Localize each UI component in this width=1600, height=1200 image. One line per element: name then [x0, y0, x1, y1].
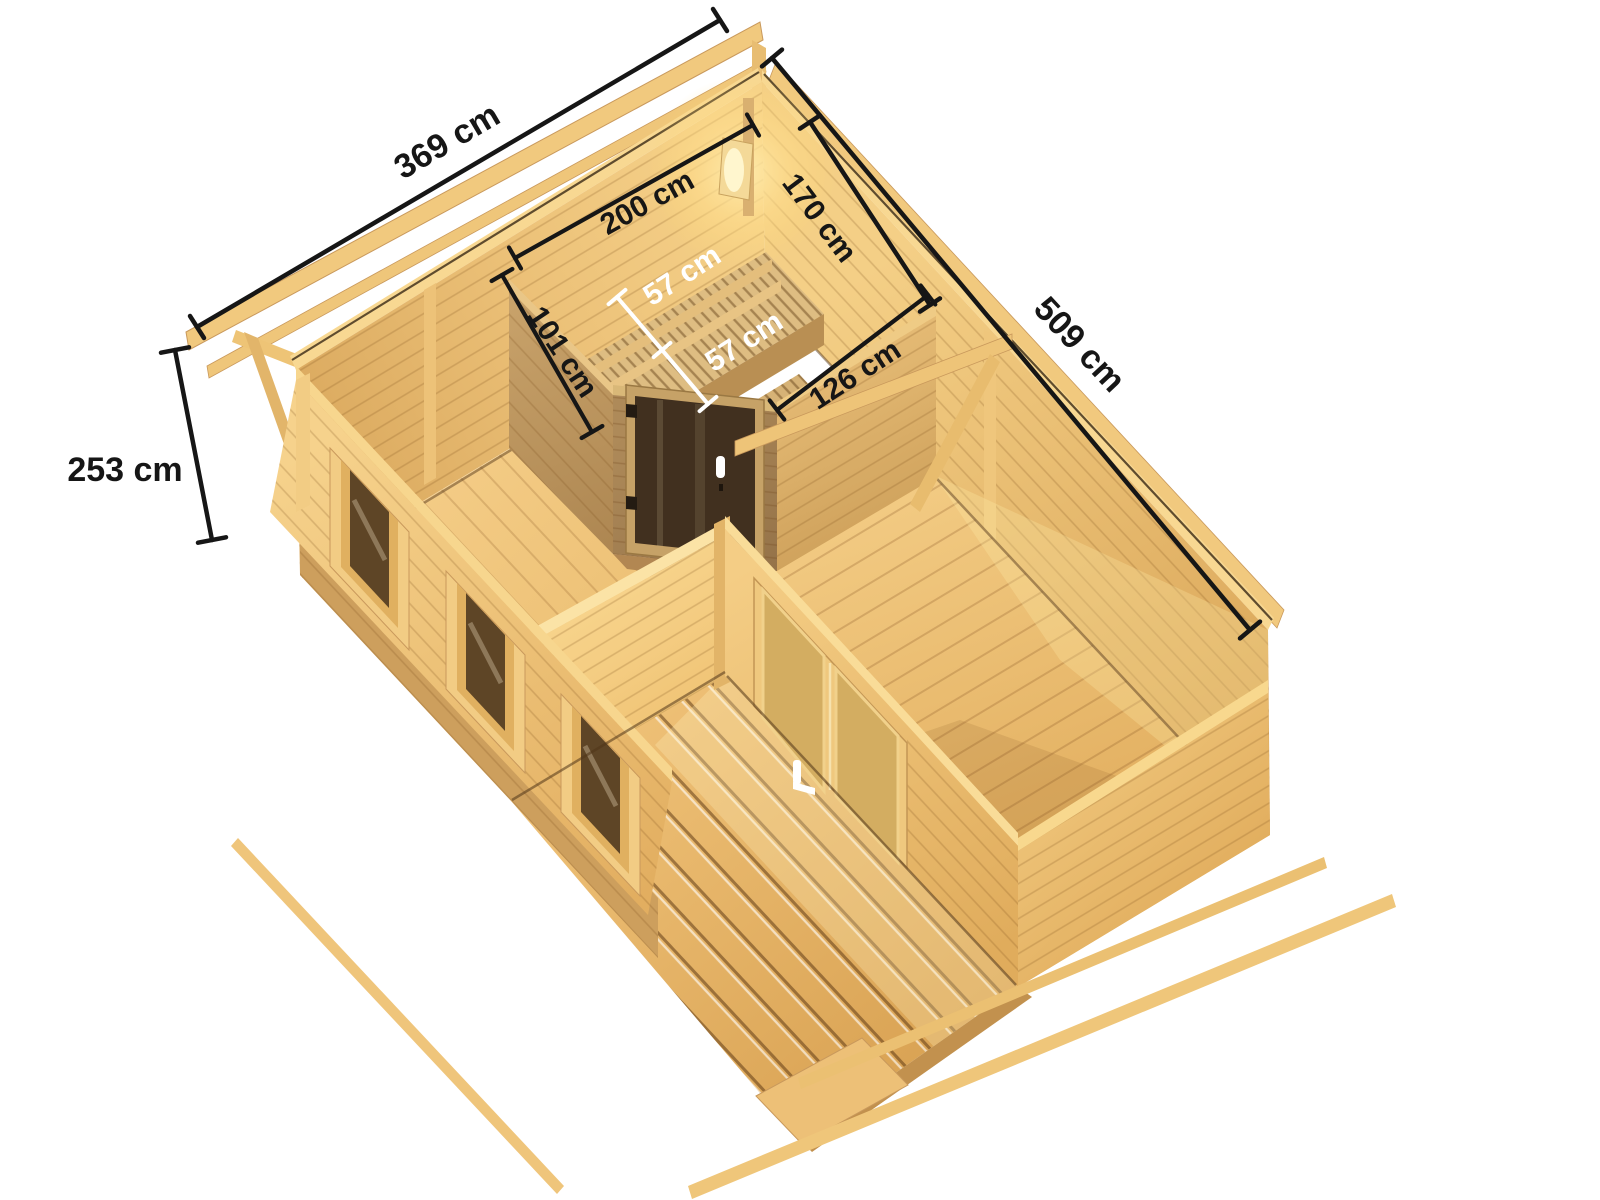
- sauna-door-hinge-bottom: [626, 496, 637, 510]
- sauna-house-diagram: 369 cm 170 cm 509 cm 253 cm 200 cm 101 c…: [0, 0, 1600, 1200]
- sauna-door-hinge-top: [626, 404, 637, 418]
- sauna-corner-lamp: [719, 138, 753, 200]
- sauna-door-handle: [716, 456, 725, 478]
- render-canvas: 369 cm 170 cm 509 cm 253 cm 200 cm 101 c…: [0, 0, 1600, 1200]
- corner-trim: [296, 373, 310, 512]
- label-wall-height: 253 cm: [67, 451, 182, 489]
- sauna-door-lock: [719, 484, 723, 491]
- dimension-wall-height: [161, 347, 226, 542]
- side-rail-low: [231, 838, 564, 1194]
- wall-stud-left: [424, 283, 436, 485]
